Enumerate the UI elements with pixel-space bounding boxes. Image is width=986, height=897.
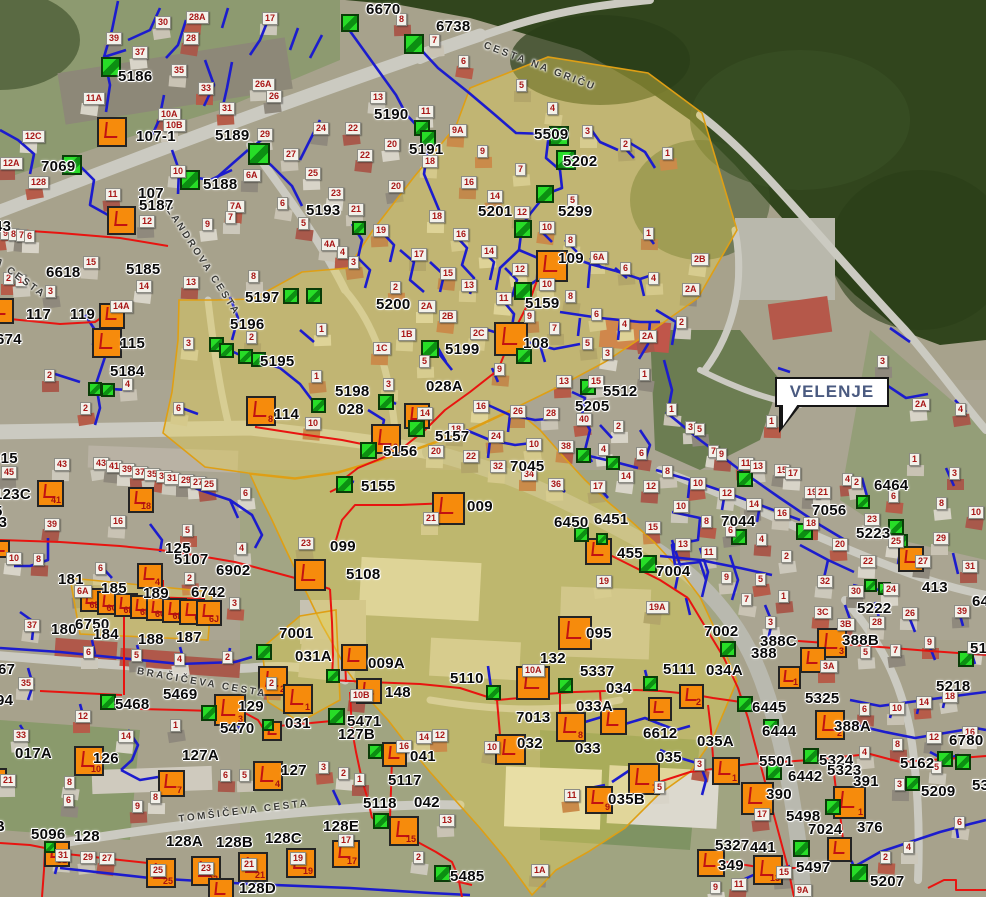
house-number-label: 13 xyxy=(461,279,477,292)
parcel-label: 127B xyxy=(338,726,375,743)
green-marker[interactable] xyxy=(486,685,501,700)
house-number-label: 24 xyxy=(488,430,504,443)
orange-marker[interactable]: 15 xyxy=(389,816,419,846)
parcel-label: 390 xyxy=(766,786,792,803)
parcel-label: 125 xyxy=(165,540,191,557)
house-number-label: 14 xyxy=(417,407,433,420)
hook-icon xyxy=(143,567,156,580)
parcel-label: 349 xyxy=(718,857,744,874)
green-marker[interactable] xyxy=(368,744,383,759)
house-number-label: 8 xyxy=(248,270,259,283)
green-marker[interactable] xyxy=(536,185,554,203)
house-number-label: 10 xyxy=(539,221,555,234)
green-marker[interactable] xyxy=(408,420,425,437)
orange-marker[interactable] xyxy=(208,878,234,897)
house-number-label: 6 xyxy=(954,816,965,829)
house-number-label: 6 xyxy=(83,646,94,659)
orange-marker[interactable]: 2 xyxy=(679,684,704,709)
orange-marker[interactable] xyxy=(294,559,326,591)
marker-number: 41 xyxy=(51,495,61,505)
house-number-label: 4 xyxy=(598,443,609,456)
green-marker[interactable] xyxy=(373,813,389,829)
house-number-label: 28A xyxy=(186,11,209,24)
parcel-label: 035B xyxy=(608,791,645,808)
hook-icon xyxy=(635,768,650,785)
parcel-label: 035A xyxy=(697,733,734,750)
house-number-label: 16 xyxy=(473,400,489,413)
hook-icon xyxy=(253,401,268,417)
parcel-label: 5470 xyxy=(220,720,255,737)
house-number-label: 10 xyxy=(889,702,905,715)
parcel-label: 6742 xyxy=(191,584,226,601)
house-number-label: 5 xyxy=(419,355,430,368)
green-marker[interactable] xyxy=(864,579,877,592)
orange-marker[interactable] xyxy=(107,206,136,235)
orange-marker[interactable]: 4 xyxy=(253,761,283,791)
parcel-label: 5218 xyxy=(936,678,971,695)
hook-icon xyxy=(99,333,114,349)
parcel-label: 099 xyxy=(330,538,356,555)
parcel-label: 376 xyxy=(857,819,883,836)
house-number-label: 11 xyxy=(418,105,434,118)
house-number-label: 16 xyxy=(461,176,477,189)
orange-marker[interactable] xyxy=(92,328,122,358)
green-marker[interactable] xyxy=(596,533,608,545)
parcel-label: 042 xyxy=(414,794,440,811)
green-marker[interactable] xyxy=(606,456,620,470)
marker-number: 17 xyxy=(347,856,357,866)
parcel-label: 028A xyxy=(426,378,463,395)
parcel-label: 128 xyxy=(74,828,100,845)
house-number-label: 21 xyxy=(815,486,831,499)
house-number-label: 2 xyxy=(613,420,624,433)
parcel-label: 127A xyxy=(182,747,219,764)
house-number-label: 2 xyxy=(880,851,891,864)
green-marker[interactable] xyxy=(352,221,366,235)
green-marker[interactable] xyxy=(793,840,810,857)
parcel-label: 187 xyxy=(176,629,202,646)
house-number-label: 11 xyxy=(105,188,121,201)
house-number-label: 5 xyxy=(131,649,142,662)
orange-marker[interactable]: 41 xyxy=(37,480,64,507)
house-number-label: 6 xyxy=(277,197,288,210)
green-marker[interactable] xyxy=(856,495,870,509)
parcel-label: 94 xyxy=(0,692,13,709)
orange-marker[interactable] xyxy=(0,298,14,324)
hook-icon xyxy=(301,564,316,581)
house-number-label: 6 xyxy=(24,230,35,243)
parcel-label: 7056 xyxy=(812,502,847,519)
house-number-label: 13 xyxy=(183,276,199,289)
house-number-label: 3 xyxy=(602,347,613,360)
house-number-label: 8 xyxy=(64,776,75,789)
green-marker[interactable] xyxy=(558,678,573,693)
parcel-label: 128B xyxy=(216,834,253,851)
parcel-label: 034A xyxy=(706,662,743,679)
house-number-label: 1C xyxy=(373,342,391,355)
house-number-label: 8 xyxy=(565,290,576,303)
green-marker[interactable] xyxy=(576,448,591,463)
house-number-label: 6 xyxy=(591,308,602,321)
house-number-label: 7 xyxy=(890,644,901,657)
marker-number: 7 xyxy=(177,785,182,795)
parcel-label: 5469 xyxy=(163,686,198,703)
green-marker[interactable] xyxy=(378,394,394,410)
green-marker[interactable] xyxy=(88,382,102,396)
parcel-label: 5156 xyxy=(383,443,418,460)
orange-marker[interactable]: 18 xyxy=(128,487,154,513)
green-marker[interactable] xyxy=(248,143,270,165)
parcel-label: 388B xyxy=(842,632,879,649)
green-marker[interactable] xyxy=(643,676,658,691)
hook-icon xyxy=(347,648,360,662)
house-number-label: 17 xyxy=(338,834,354,847)
green-marker[interactable] xyxy=(219,343,234,358)
house-number-label: 8 xyxy=(936,497,947,510)
parcel-label: 674 xyxy=(0,331,22,348)
house-number-label: 6 xyxy=(240,487,251,500)
house-number-label: 9A xyxy=(794,884,812,897)
marker-number: 19 xyxy=(303,866,313,876)
house-number-label: 22 xyxy=(357,149,373,162)
house-number-label: 4 xyxy=(903,841,914,854)
marker-number: 15 xyxy=(406,834,416,844)
orange-marker[interactable]: 8 xyxy=(556,712,586,742)
house-number-label: 12 xyxy=(926,731,942,744)
house-number-label: 12 xyxy=(512,263,528,276)
hook-icon xyxy=(566,621,582,639)
house-number-label: 8 xyxy=(150,791,161,804)
house-number-label: 9A xyxy=(449,124,467,137)
parcel-label: 5110 xyxy=(450,670,484,687)
house-number-label: 29 xyxy=(80,851,96,864)
house-number-label: 6 xyxy=(173,402,184,415)
house-number-label: 1 xyxy=(354,773,365,786)
orange-marker[interactable]: 7 xyxy=(158,770,185,797)
house-number-label: 9 xyxy=(721,571,732,584)
house-number-label: 3 xyxy=(348,256,359,269)
green-marker[interactable] xyxy=(100,694,116,710)
house-number-label: 8 xyxy=(662,465,673,478)
house-number-label: 10B xyxy=(350,689,373,702)
green-marker[interactable] xyxy=(311,398,326,413)
parcel-label: 5108 xyxy=(346,566,381,583)
house-number-label: 24 xyxy=(883,583,899,596)
green-marker[interactable] xyxy=(201,705,217,721)
house-number-label: 28 xyxy=(183,32,199,45)
hook-icon xyxy=(290,689,305,705)
house-number-label: 7 xyxy=(549,322,560,335)
house-number-label: 3 xyxy=(183,337,194,350)
house-number-label: 15 xyxy=(588,375,604,388)
green-marker[interactable] xyxy=(825,799,841,815)
house-number-label: 21 xyxy=(241,858,257,871)
house-number-label: 35 xyxy=(18,677,34,690)
house-number-label: 9 xyxy=(924,636,935,649)
parcel-label: 5187 xyxy=(139,197,174,214)
green-marker[interactable] xyxy=(850,864,868,882)
parcel-label: 5155 xyxy=(361,478,396,495)
house-number-label: 20 xyxy=(388,180,404,193)
house-number-label: 16 xyxy=(110,515,126,528)
parcel-label: 6670 xyxy=(366,1,401,18)
orange-marker[interactable]: 6J xyxy=(196,600,222,626)
parcel-label: 5327 xyxy=(715,837,750,854)
green-marker[interactable] xyxy=(434,865,451,882)
house-number-label: 14 xyxy=(118,730,134,743)
house-number-label: 1 xyxy=(766,415,777,428)
parcel-label: 033 xyxy=(575,740,601,757)
parcel-label: 6902 xyxy=(216,562,251,579)
house-number-label: 6 xyxy=(63,794,74,807)
house-number-label: 25 xyxy=(305,167,321,180)
green-marker[interactable] xyxy=(737,471,753,487)
house-number-label: 13 xyxy=(439,814,455,827)
house-number-label: 3 xyxy=(318,761,329,774)
house-number-label: 2B xyxy=(691,253,709,266)
orange-marker[interactable]: 1 xyxy=(712,757,740,785)
hook-icon xyxy=(824,633,839,649)
house-number-label: 14 xyxy=(618,470,634,483)
marker-number: 1 xyxy=(305,702,310,712)
green-marker[interactable] xyxy=(404,34,424,54)
parcel-label: 126 xyxy=(93,750,119,767)
house-number-label: 25 xyxy=(201,478,217,491)
parcel-label: 5299 xyxy=(558,203,593,220)
house-number-label: 26 xyxy=(510,405,526,418)
house-number-label: 4 xyxy=(859,746,870,759)
parcel-label: 5337 xyxy=(580,663,615,680)
parcel-label: 119 xyxy=(70,306,95,323)
parcel-label: 5509 xyxy=(534,126,569,143)
green-marker[interactable] xyxy=(283,288,299,304)
green-marker[interactable] xyxy=(737,696,753,712)
house-number-label: 1 xyxy=(666,403,677,416)
house-number-label: 26 xyxy=(902,607,918,620)
parcel-label: 5195 xyxy=(260,353,295,370)
house-number-label: 1 xyxy=(170,719,181,732)
house-number-label: 3 xyxy=(894,778,905,791)
parcel-label: 5157 xyxy=(435,428,470,445)
parcel-label: 5193 xyxy=(306,202,341,219)
house-number-label: 25 xyxy=(150,864,166,877)
house-number-label: 6 xyxy=(95,562,106,575)
marker-number: 2 xyxy=(696,697,701,707)
house-number-label: 24 xyxy=(313,122,329,135)
parcel-label: 5205 xyxy=(575,398,610,415)
parcel-label: 128A xyxy=(166,833,203,850)
parcel-label: 189 xyxy=(143,585,169,602)
parcel-label: 5185 xyxy=(126,261,161,278)
house-number-label: 12 xyxy=(75,710,91,723)
house-number-label: 5 xyxy=(755,573,766,586)
parcel-label: 028 xyxy=(338,401,364,418)
house-number-label: 9 xyxy=(716,448,727,461)
house-number-label: 3 xyxy=(383,378,394,391)
house-number-label: 35 xyxy=(171,64,187,77)
house-number-label: 1 xyxy=(778,590,789,603)
green-marker[interactable] xyxy=(306,288,322,304)
house-number-label: 4 xyxy=(236,542,247,555)
house-number-label: 16 xyxy=(453,228,469,241)
parcel-label: 391 xyxy=(853,773,879,790)
house-number-label: 5 xyxy=(694,423,705,436)
house-number-label: 5 xyxy=(654,781,665,794)
parcel-label: 23 xyxy=(0,514,7,531)
hook-icon xyxy=(164,774,177,788)
house-number-label: 5 xyxy=(182,524,193,537)
house-number-label: 14A xyxy=(110,300,133,313)
house-number-label: 2 xyxy=(676,316,687,329)
house-number-label: 1B xyxy=(398,328,416,341)
parcel-label: 7069 xyxy=(41,158,76,175)
house-number-label: 14 xyxy=(746,498,762,511)
house-number-label: 3 xyxy=(949,467,960,480)
house-number-label: 14 xyxy=(487,190,503,203)
parcel-label: 132 xyxy=(540,650,566,667)
green-marker[interactable] xyxy=(101,383,115,397)
house-number-label: 2A xyxy=(418,300,436,313)
house-number-label: 19A xyxy=(646,601,669,614)
green-marker[interactable] xyxy=(256,644,272,660)
house-number-label: 6 xyxy=(620,262,631,275)
house-number-label: 27 xyxy=(915,555,931,568)
house-number-label: 32 xyxy=(817,575,833,588)
house-number-label: 2 xyxy=(851,476,862,489)
house-number-label: 4 xyxy=(756,533,767,546)
parcel-label: 031 xyxy=(285,715,311,732)
parcel-label: 5159 xyxy=(525,295,560,312)
house-number-label: 12A xyxy=(0,157,23,170)
house-number-label: 2 xyxy=(781,550,792,563)
house-number-label: 2B xyxy=(439,310,457,323)
hook-icon xyxy=(439,497,455,514)
house-number-label: 15 xyxy=(776,866,792,879)
marker-number: 8 xyxy=(578,730,583,740)
orange-marker[interactable] xyxy=(97,117,127,147)
house-number-label: 22 xyxy=(463,450,479,463)
house-number-label: 37 xyxy=(24,619,40,632)
green-marker[interactable] xyxy=(360,442,377,459)
parcel-label: 6450 xyxy=(554,514,589,531)
parcel-label: 388 xyxy=(751,645,777,662)
house-number-label: 33 xyxy=(198,82,214,95)
house-number-label: 39 xyxy=(954,605,970,618)
house-number-label: 6 xyxy=(859,703,870,716)
hook-icon xyxy=(543,255,558,272)
orange-marker[interactable] xyxy=(341,644,368,671)
green-marker[interactable] xyxy=(262,719,274,731)
parcel-label: 6445 xyxy=(752,699,787,716)
green-marker[interactable] xyxy=(803,748,819,764)
parcel-label: 5118 xyxy=(363,795,397,812)
house-number-label: 6 xyxy=(636,447,647,460)
house-number-label: 21 xyxy=(348,203,364,216)
house-number-label: 43 xyxy=(54,458,70,471)
house-number-label: 1 xyxy=(316,323,327,336)
marker-number: 1 xyxy=(732,773,737,783)
parcel-label: 5497 xyxy=(796,859,831,876)
parcel-label: 6451 xyxy=(594,511,629,528)
hook-icon xyxy=(114,211,128,226)
house-number-label: 1 xyxy=(643,227,654,240)
parcel-label: 51 xyxy=(970,640,986,657)
marker-number: 25 xyxy=(163,876,173,886)
orange-marker[interactable]: 1 xyxy=(283,684,313,714)
parcel-label: 64 xyxy=(972,593,986,610)
parcel-label: 115 xyxy=(120,335,145,352)
house-number-label: 38 xyxy=(558,440,574,453)
green-marker[interactable] xyxy=(336,476,353,493)
parcel-label: 035 xyxy=(656,749,682,766)
parcel-label: 180 xyxy=(51,621,77,638)
house-number-label: 2 xyxy=(390,281,401,294)
house-number-label: 17 xyxy=(411,248,427,261)
house-number-label: 10 xyxy=(673,500,689,513)
house-number-label: 9 xyxy=(710,881,721,894)
green-marker[interactable] xyxy=(905,776,920,791)
house-number-label: 13 xyxy=(370,91,386,104)
green-marker[interactable] xyxy=(341,14,359,32)
house-number-label: 1 xyxy=(662,147,673,160)
orange-marker[interactable]: 1 xyxy=(778,666,801,689)
parcel-label: 108 xyxy=(523,335,549,352)
green-marker[interactable] xyxy=(328,708,345,725)
orange-marker[interactable] xyxy=(648,697,672,721)
marker-number: 6J xyxy=(209,614,219,624)
parcel-label: 6444 xyxy=(762,723,797,740)
parcel-label: 7044 xyxy=(721,513,756,530)
map-canvas[interactable]: 812411846B6C6D6E6G6H6I6J2131074312523211… xyxy=(0,0,986,897)
parcel-label: 43 xyxy=(0,218,11,235)
house-number-label: 17 xyxy=(785,467,801,480)
house-number-label: 10 xyxy=(690,477,706,490)
parcel-label: 7045 xyxy=(510,458,545,475)
house-number-label: 17 xyxy=(262,12,278,25)
marker-number: 1 xyxy=(793,677,798,687)
green-marker[interactable] xyxy=(514,220,532,238)
parcel-label: 114 xyxy=(274,406,299,423)
street-label: TOMŠIČEVA CESTA xyxy=(178,798,310,825)
house-number-label: 7 xyxy=(515,163,526,176)
hook-icon xyxy=(104,122,119,138)
house-number-label: 2C xyxy=(470,327,488,340)
house-number-label: 5 xyxy=(582,337,593,350)
house-number-label: 10 xyxy=(170,165,186,178)
house-number-label: 20 xyxy=(384,138,400,151)
house-number-label: 23 xyxy=(298,537,314,550)
house-number-label: 33 xyxy=(13,729,29,742)
house-number-label: 13 xyxy=(750,460,766,473)
parcel-label: 032 xyxy=(517,735,543,752)
green-marker[interactable] xyxy=(720,641,736,657)
house-number-label: 21 xyxy=(0,774,16,787)
parcel-label: 7002 xyxy=(704,623,739,640)
house-number-label: 18 xyxy=(429,210,445,223)
parcel-label: 009 xyxy=(467,498,493,515)
house-number-label: 5 xyxy=(239,769,250,782)
parcel-label: 148 xyxy=(385,684,411,701)
house-number-label: 12 xyxy=(719,487,735,500)
parcel-label: 107-1 xyxy=(136,128,176,145)
green-marker[interactable] xyxy=(955,754,971,770)
house-number-label: 2A xyxy=(682,283,700,296)
parcel-label: 185 xyxy=(101,580,127,597)
green-marker[interactable] xyxy=(326,669,340,683)
parcel-label: 128E xyxy=(323,818,359,835)
house-number-label: 3 xyxy=(877,355,888,368)
orange-marker[interactable]: 8 xyxy=(246,396,276,426)
